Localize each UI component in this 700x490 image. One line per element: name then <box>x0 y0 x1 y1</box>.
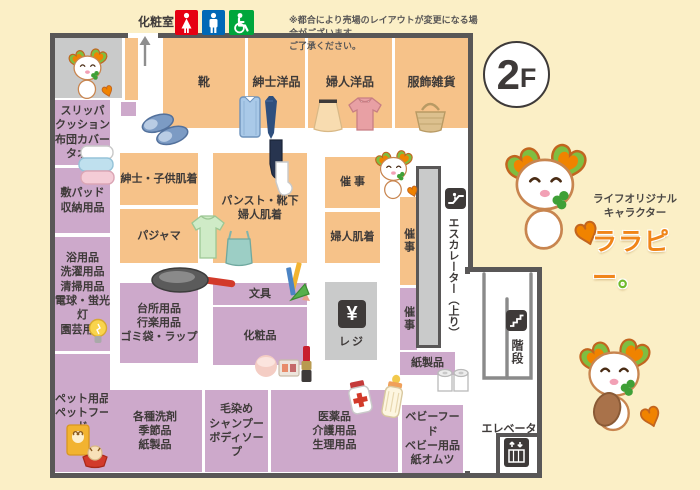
cosmetics-icon <box>253 344 317 388</box>
stairs-label: 階段 <box>509 335 526 369</box>
dept-pajamas-label: パジャマ <box>137 229 180 243</box>
dept-event-main-label: 催 事 <box>340 175 365 189</box>
escalator-label: エスカレーター（上り） <box>445 212 461 342</box>
notice-line-2: ご了承ください。 <box>289 40 479 53</box>
dept-event-side1-label: 催事 <box>401 228 415 254</box>
dept-pajamas: パジャマ <box>120 209 198 263</box>
store-floor-map: { "floor_badge": { "number": "2", "suffi… <box>0 0 700 490</box>
blouse-icon <box>345 94 385 134</box>
mascot-main <box>490 122 602 256</box>
small-purple-block <box>121 102 136 116</box>
elevator-icon <box>504 438 529 467</box>
stationery-icon <box>283 260 315 302</box>
socks-icon <box>256 138 298 202</box>
character-caption-line2: キャラクター <box>592 206 678 220</box>
character-caption: ライフオリジナル キャラクター <box>592 192 678 220</box>
dept-womens-underwear: 婦人肌着 <box>325 212 380 263</box>
dept-womens-wear-label: 婦人洋品 <box>326 75 374 91</box>
notice-line-1: ※都合により売場のレイアウトが変更になる場合がございます。 <box>289 14 479 40</box>
character-caption-line1: ライフオリジナル <box>592 192 678 206</box>
register-label: レジ <box>333 333 371 349</box>
pet-food-icon <box>63 423 113 469</box>
dept-baby-label: ベビーフード ベビー用品 紙オムツ <box>402 410 463 467</box>
towels-icon <box>77 144 117 188</box>
restroom-male-icon <box>202 10 225 35</box>
toilet-paper-icon <box>435 365 471 399</box>
dept-cosmetics-label: 化粧品 <box>244 329 277 343</box>
restroom-label: 化粧室 <box>138 13 174 30</box>
dept-event-side1: 催事 <box>400 197 417 285</box>
escalator-icon <box>445 188 466 209</box>
baby-bottle-icon <box>379 374 407 420</box>
mascot-event <box>368 142 420 200</box>
dept-stationery-label: 文具 <box>249 287 271 301</box>
floor-badge: 2 F <box>483 41 550 108</box>
mascot-sweet-potato <box>566 322 664 434</box>
dept-event-side2: 催事 <box>400 288 417 350</box>
mascot-corner <box>58 40 118 100</box>
restroom-arrow-icon <box>138 36 152 68</box>
dept-fashion-goods-label: 服飾雑貨 <box>407 75 455 91</box>
dept-mens-kids-underwear-label: 紳士・子供肌着 <box>121 172 198 186</box>
shirt-tie-icon <box>238 93 280 141</box>
character-name-period: 。 <box>618 264 644 292</box>
dept-shoes-label: 靴 <box>198 75 210 91</box>
dept-detergents-label: 各種洗剤 季節品 紙製品 <box>133 410 177 453</box>
yen-icon: ¥ <box>338 300 366 328</box>
floor-number: 2 <box>497 54 520 96</box>
lightbulb-icon <box>85 318 111 346</box>
dept-detergents: 各種洗剤 季節品 紙製品 <box>108 390 202 472</box>
floor-suffix: F <box>520 65 537 92</box>
dept-kitchen-goods-label: 台所用品 行楽用品 ゴミ袋・ラップ <box>121 302 198 345</box>
restroom-female-icon <box>175 10 198 35</box>
frying-pan-icon <box>150 264 238 298</box>
yen-symbol: ¥ <box>346 303 357 326</box>
skirt-icon <box>310 97 346 133</box>
dept-womens-underwear-label: 婦人肌着 <box>331 230 375 244</box>
dept-bed-pads-label: 敷パッド 収納用品 <box>61 186 105 215</box>
character-name: ララピー。 <box>592 222 700 294</box>
dept-mens-wear-label: 紳士洋品 <box>252 75 300 91</box>
dept-event-side2-label: 催事 <box>401 306 415 332</box>
stairs-icon <box>506 310 527 331</box>
basket-bag-icon <box>412 98 449 135</box>
tshirt-icon <box>190 213 226 263</box>
dept-hair-care-label: 毛染め シャンプー ボディソープ <box>205 402 268 459</box>
dept-mens-kids-underwear: 紳士・子供肌着 <box>120 153 198 205</box>
orange-strip <box>125 38 138 100</box>
camisole-icon <box>224 229 254 267</box>
layout-notice: ※都合により売場のレイアウトが変更になる場合がございます。 ご了承ください。 <box>289 14 479 53</box>
dept-baby: ベビーフード ベビー用品 紙オムツ <box>402 405 463 473</box>
shoes-icon <box>140 103 192 155</box>
restroom-accessible-icon <box>229 10 254 35</box>
medicine-bottle-icon <box>345 379 375 417</box>
dept-hair-care: 毛染め シャンプー ボディソープ <box>205 390 268 472</box>
